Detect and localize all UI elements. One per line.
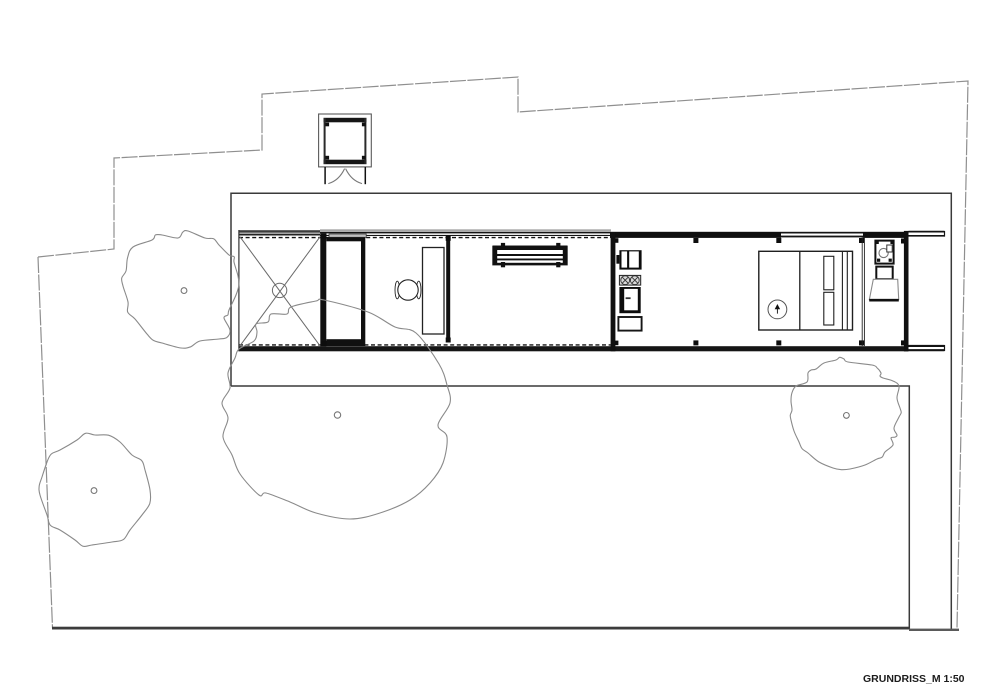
svg-text:GRUNDRISS_M 1:50: GRUNDRISS_M 1:50 [863,673,965,685]
